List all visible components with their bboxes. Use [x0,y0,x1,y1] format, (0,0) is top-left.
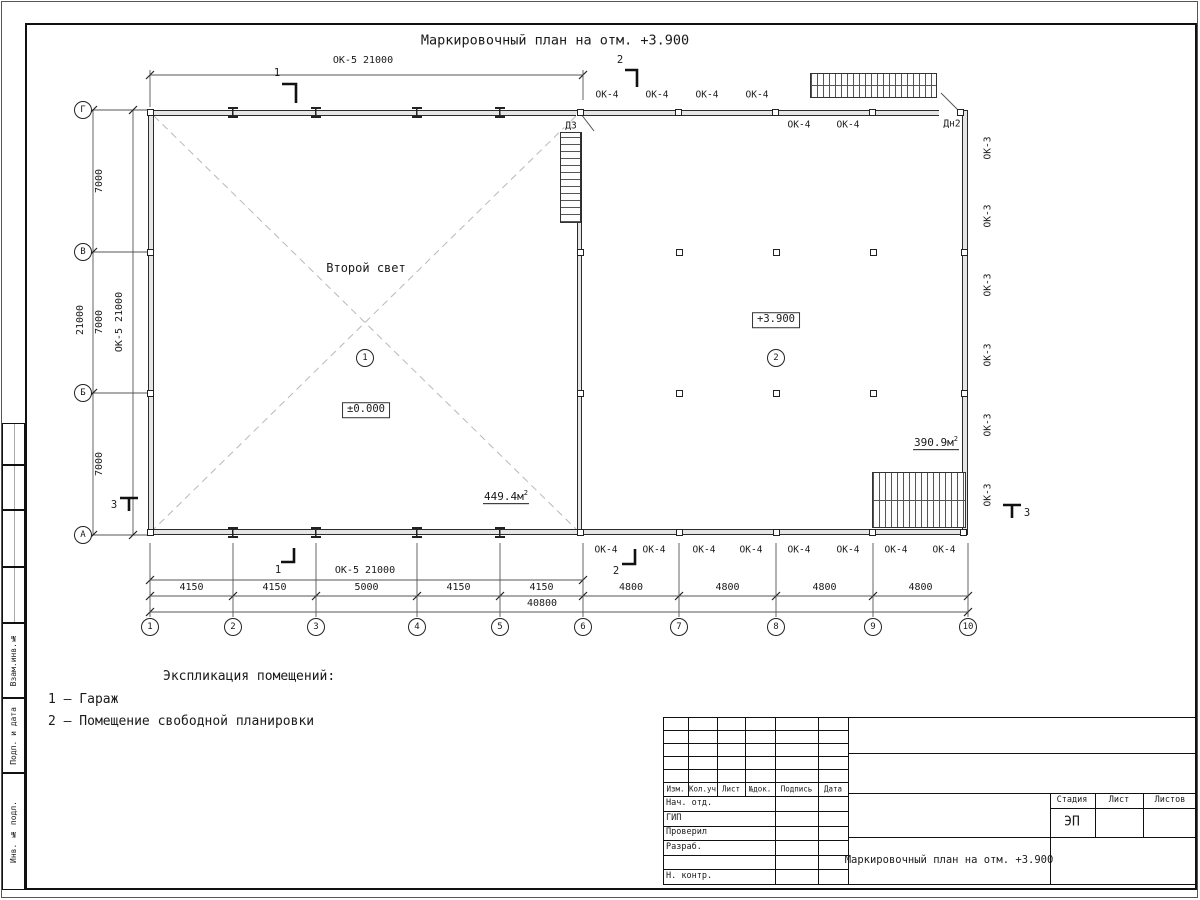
titleblock-line [663,769,848,770]
window-mark-ok3: ОК-3 [983,137,993,160]
dim-bottom-segment: 4150 [179,583,203,593]
section-number-1: 1 [275,565,281,576]
titleblock-line [663,743,848,744]
column-mark [147,390,154,397]
dim-left-7000: 7000 [95,452,105,476]
legend-item-1: 1 – Гараж [48,693,118,706]
titleblock-line [848,717,849,884]
titleblock-header-col: Подпись [781,785,813,793]
column-mark [772,109,779,116]
ibeam-column-mark [495,527,505,538]
titleblock-doc-title: Маркировочный план на отм. +3.900 [845,855,1054,866]
window-mark-ok3: ОК-3 [983,344,993,367]
column-mark [147,109,154,116]
window-mark-ok3: ОК-3 [983,484,993,507]
window-mark-ok3: ОК-3 [983,274,993,297]
axis-bubble-1: 1 [141,618,159,636]
axis-bubble-3: 3 [307,618,325,636]
ibeam-column-mark [311,107,321,118]
section-mark-2-top [625,70,637,87]
dim-left-total: 21000 [76,305,86,335]
column-mark [577,529,584,536]
dim-bottom-segment: 4800 [619,583,643,593]
titleblock-line [663,796,848,797]
section-number-3: 3 [1024,508,1030,519]
room1-name: Второй свет [326,262,405,274]
column-mark [957,109,964,116]
titleblock-line [663,782,848,783]
column-mark [870,249,877,256]
titleblock-header-col: Дата [824,785,842,793]
window-mark-ok4: ОК-4 [837,545,860,555]
axis-bubble-5: 5 [491,618,509,636]
section-number-2: 2 [613,566,619,577]
window-mark-ok3: ОК-3 [983,205,993,228]
dim-bottom-segment: 4150 [446,583,470,593]
room1-level-mark: ±0.000 [342,402,390,418]
dim-ok5-bottom: ОК-5 21000 [335,566,395,576]
axis-bubble-В: В [74,243,92,261]
column-mark [577,249,584,256]
titleblock-line [663,717,1197,718]
window-mark-ok4: ОК-4 [740,545,763,555]
titleblock-staff-row: Разраб. [666,843,702,852]
titleblock-stage-label: Стадия [1057,796,1088,805]
column-mark [676,390,683,397]
column-mark [147,249,154,256]
window-mark-ok4: ОК-4 [933,545,956,555]
window-mark-ok4: ОК-4 [643,545,666,555]
section-mark-3-left [120,498,138,511]
window-mark-ok4: ОК-4 [837,120,860,130]
window-mark-ok4: ОК-4 [595,545,618,555]
titleblock-line [848,837,1197,838]
window-mark-ok4: ОК-4 [646,90,669,100]
ibeam-column-mark [228,527,238,538]
dim-ok5-left: ОК-5 21000 [115,292,125,352]
dim-bottom-segment: 4800 [908,583,932,593]
section-mark-1-top [282,84,296,103]
dim-bottom-segment: 5000 [354,583,378,593]
titleblock-line [1095,793,1096,837]
axis-bubble-7: 7 [670,618,688,636]
dim-bottom-segment: 4150 [262,583,286,593]
column-mark [773,529,780,536]
column-mark [577,390,584,397]
dim-ok5-top: ОК-5 21000 [333,56,393,66]
window-mark-ok4: ОК-4 [746,90,769,100]
dim-left-7000: 7000 [95,169,105,193]
ibeam-column-mark [412,107,422,118]
column-mark [147,529,154,536]
titleblock-header-col: №док. [749,785,772,793]
titleblock-line [1196,717,1197,884]
column-mark [870,390,877,397]
dim-bottom-segment: 4800 [812,583,836,593]
column-mark [961,390,968,397]
axis-bubble-Б: Б [74,384,92,402]
column-mark [869,109,876,116]
titleblock-line [848,753,1197,754]
window-mark-ok4: ОК-4 [788,545,811,555]
titleblock-line [1050,808,1197,809]
axis-bubble-9: 9 [864,618,882,636]
axis-bubble-6: 6 [574,618,592,636]
titleblock-sheet-label: Лист [1109,796,1129,805]
titleblock-line [1143,793,1144,837]
room2-number-badge: 2 [767,349,785,367]
ibeam-column-mark [228,107,238,118]
ibeam-column-mark [412,527,422,538]
marks-layer [0,0,1200,900]
dim-left-7000: 7000 [95,310,105,334]
titleblock-line [663,869,848,870]
titleblock-line [663,811,848,812]
titleblock-line [663,884,1197,885]
titleblock-staff-row: Нач. отд. [666,799,712,808]
section-number-3: 3 [111,500,117,511]
window-mark-ok4: ОК-4 [693,545,716,555]
section-mark-2-bottom [622,549,635,564]
section-number-2: 2 [617,55,623,66]
titleblock-staff-row: Проверил [666,828,707,837]
titleblock-line [663,730,848,731]
door-label-dn2: Дн2 [943,119,960,129]
column-mark [960,529,967,536]
titleblock-staff-row: Н. контр. [666,872,712,881]
column-mark [676,249,683,256]
titleblock-sheets-label: Листов [1155,796,1186,805]
titleblock-header-col: Изм. [666,785,684,793]
titleblock-line [663,756,848,757]
axis-bubble-А: А [74,526,92,544]
window-mark-ok4: ОК-4 [788,120,811,130]
dim-bottom-segment: 4800 [715,583,739,593]
titleblock-stage-value: ЭП [1064,816,1080,829]
titleblock-header-col: Кол.уч [689,785,716,793]
axis-bubble-Г: Г [74,101,92,119]
column-mark [773,390,780,397]
page-title: Маркировочный план на отм. +3.900 [421,34,689,48]
titleblock-header-col: Лист [722,785,740,793]
section-mark-1-bottom [281,548,294,562]
column-mark [577,109,584,116]
column-mark [675,109,682,116]
axis-bubble-2: 2 [224,618,242,636]
room2-level-mark: +3.900 [752,312,800,328]
titleblock-line [848,793,1197,794]
titleblock-staff-row: ГИП [666,814,681,823]
section-mark-3-right [1003,505,1021,518]
column-mark [676,529,683,536]
axis-bubble-4: 4 [408,618,426,636]
legend-item-2: 2 – Помещение свободной планировки [48,715,314,728]
column-mark [773,249,780,256]
titleblock-line [663,855,848,856]
axis-bubble-10: 10 [959,618,977,636]
section-number-1: 1 [274,68,280,79]
window-mark-ok4: ОК-4 [696,90,719,100]
room1-area: 449.4м2 [483,490,529,504]
ibeam-column-mark [311,527,321,538]
column-mark [961,249,968,256]
axis-bubble-8: 8 [767,618,785,636]
column-mark [869,529,876,536]
legend-heading: Экспликация помещений: [163,670,335,683]
room2-area: 390.9м2 [913,436,959,450]
window-mark-ok4: ОК-4 [885,545,908,555]
ibeam-column-mark [495,107,505,118]
dim-bottom-total: 40800 [527,599,557,609]
drawing-sheet: Взам.инв.№ Подп. и дата Инв. № подл. Мар… [0,0,1200,900]
dim-bottom-segment: 4150 [529,583,553,593]
window-mark-ok3: ОК-3 [983,414,993,437]
titleblock-line [1050,793,1051,884]
door-swing-d3 [581,114,594,131]
room1-number-badge: 1 [356,349,374,367]
window-mark-ok4: ОК-4 [596,90,619,100]
titleblock-line [663,840,848,841]
door-label-d3: Д3 [564,121,577,131]
